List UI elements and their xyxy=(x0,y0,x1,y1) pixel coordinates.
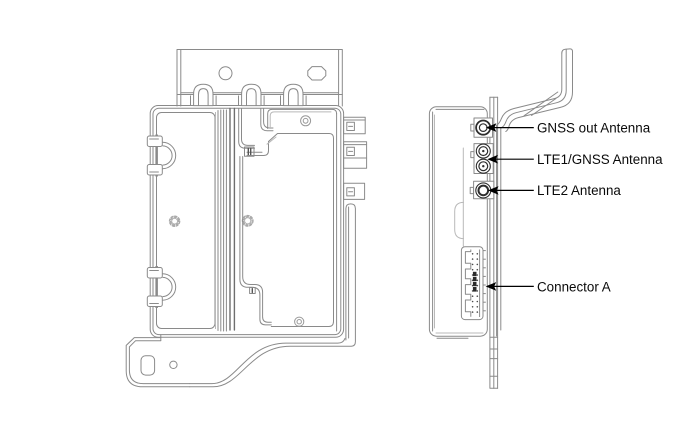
svg-text:LTE1/GNSS Antenna: LTE1/GNSS Antenna xyxy=(537,152,663,167)
svg-text:Connector A: Connector A xyxy=(537,280,611,295)
svg-text:GNSS out Antenna: GNSS out Antenna xyxy=(537,121,651,136)
svg-text:LTE2 Antenna: LTE2 Antenna xyxy=(537,183,621,198)
